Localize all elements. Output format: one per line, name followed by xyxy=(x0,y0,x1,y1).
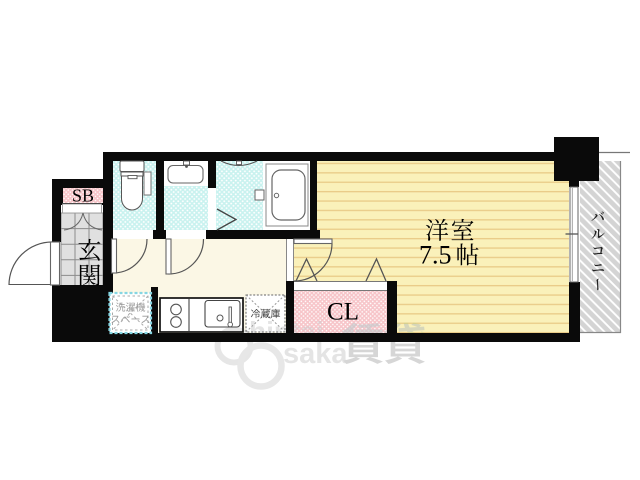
svg-text:7.5: 7.5 xyxy=(419,241,452,270)
svg-text:saka: saka xyxy=(283,338,348,370)
svg-text:CL: CL xyxy=(327,299,359,326)
svg-text:SB: SB xyxy=(72,186,94,206)
